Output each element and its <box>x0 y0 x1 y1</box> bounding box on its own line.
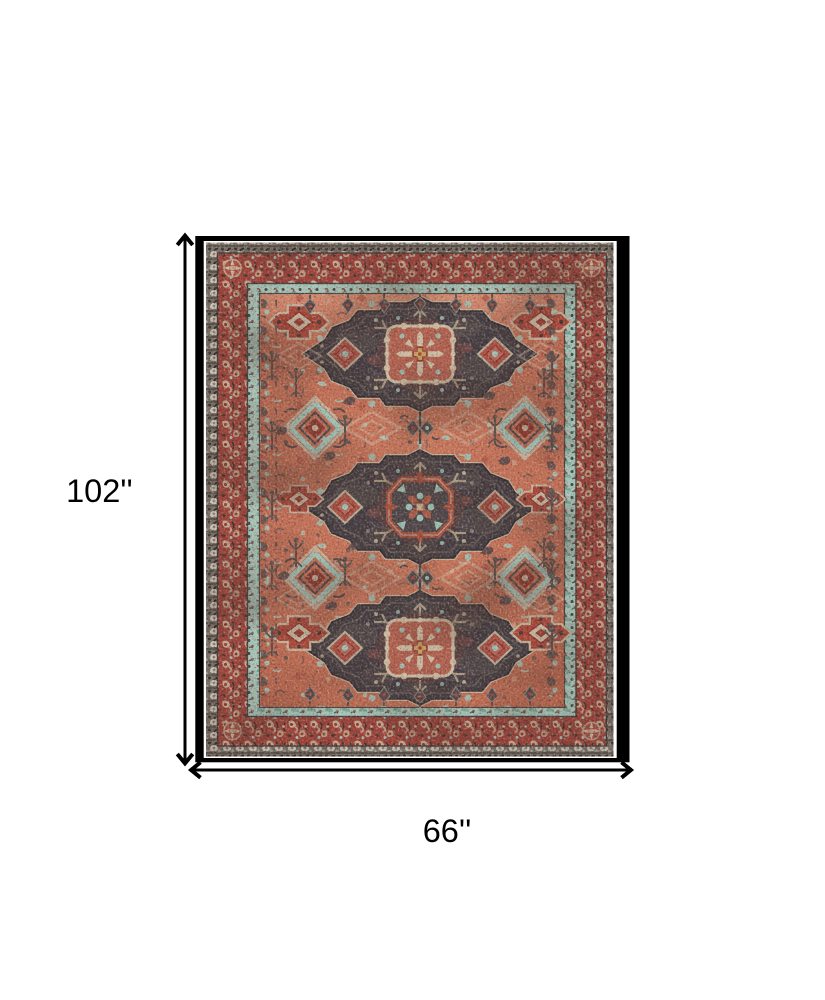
svg-text:66'': 66'' <box>423 813 472 849</box>
svg-text:102'': 102'' <box>66 473 133 509</box>
